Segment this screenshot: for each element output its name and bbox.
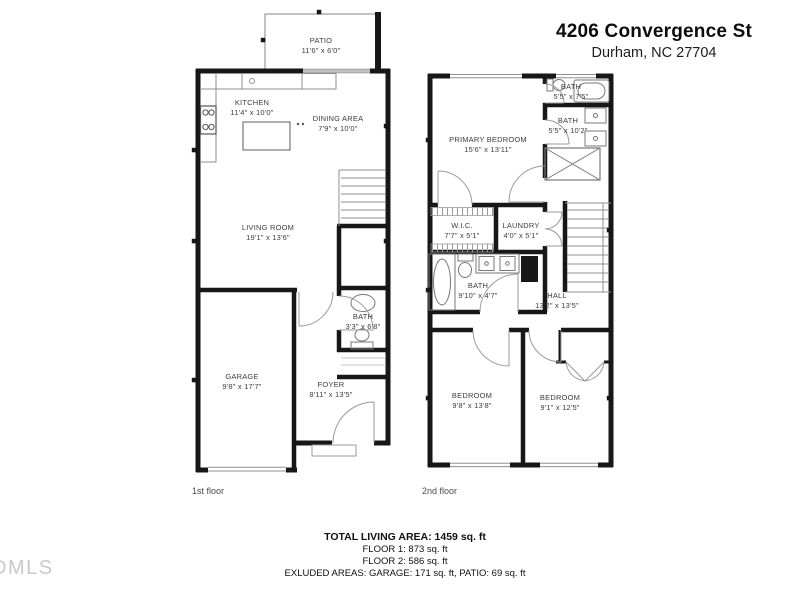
stairs-floor1 — [339, 170, 386, 226]
room-dims: 7'9" x 10'0" — [313, 124, 364, 134]
foyer-closet-shelves — [341, 358, 386, 365]
room-name: PATIO — [302, 36, 341, 46]
room-dims: 13'2" x 13'5" — [535, 301, 579, 311]
room-dims: 5'5" x 10'2" — [548, 126, 587, 136]
room-dims: 9'1" x 12'5" — [540, 403, 580, 413]
toilet-icon-main-bath — [458, 254, 473, 278]
address-subtitle: Durham, NC 27704 — [519, 45, 789, 61]
room-label-living: LIVING ROOM 19'1" x 13'6" — [242, 223, 294, 242]
room-label-patio: PATIO 11'6" x 6'0" — [302, 36, 341, 55]
room-name: BEDROOM — [452, 391, 492, 401]
sink-icons-upper-bath — [585, 108, 606, 146]
room-label-dining: DINING AREA 7'9" x 10'0" — [313, 114, 364, 133]
address-title: 4206 Convergence St — [519, 21, 789, 43]
room-name: BATH — [554, 82, 589, 92]
total-living-area: TOTAL LIVING AREA: 1459 sq. ft — [195, 531, 615, 544]
room-dims: 8'11" x 13'5" — [309, 390, 352, 400]
room-label-bedroom-right: BEDROOM 9'1" x 12'5" — [540, 393, 580, 412]
floor2-caption: 2nd floor — [422, 486, 457, 496]
room-name: LAUNDRY — [502, 221, 539, 231]
address-header: 4206 Convergence St Durham, NC 27704 — [519, 21, 789, 61]
room-dims: 15'6" x 13'11" — [449, 145, 527, 155]
kitchen-island — [243, 122, 304, 150]
room-label-hall: HALL 13'2" x 13'5" — [535, 291, 579, 310]
room-name: LIVING ROOM — [242, 223, 294, 233]
room-dims: 19'1" x 13'6" — [242, 233, 294, 243]
room-label-garage: GARAGE 9'8" x 17'7" — [222, 372, 261, 391]
floor1-plan — [196, 12, 390, 472]
room-dims: 7'7" x 5'1" — [445, 231, 480, 241]
bath1-sink-icon — [351, 295, 375, 312]
crossed-area — [545, 148, 600, 180]
bath1-toilet-icon — [351, 329, 373, 349]
room-dims: 9'10" x 4'7" — [458, 291, 497, 301]
room-label-wic: W.I.C. 7'7" x 5'1" — [445, 221, 480, 240]
stove-icon — [201, 106, 217, 134]
room-name: BEDROOM — [540, 393, 580, 403]
room-label-kitchen: KITCHEN 11'4" x 10'0" — [230, 98, 273, 117]
room-dims: 3'3" x 6'8" — [346, 322, 381, 332]
room-name: BATH — [346, 312, 381, 322]
floor1-area: FLOOR 1: 873 sq. ft — [195, 544, 615, 556]
floor1-caption: 1st floor — [192, 486, 224, 496]
room-label-bath-floor1: BATH 3'3" x 6'8" — [346, 312, 381, 331]
chase-block — [521, 256, 538, 282]
front-stoop — [312, 445, 356, 456]
room-dims: 9'8" x 13'8" — [452, 401, 492, 411]
room-name: FOYER — [309, 380, 352, 390]
floor1-interior-walls — [196, 226, 390, 470]
room-name: GARAGE — [222, 372, 261, 382]
floorplan-drawing — [0, 0, 800, 600]
room-label-bath-top: BATH 5'5" x 7'5" — [554, 82, 589, 101]
floor2-area: FLOOR 2: 586 sq. ft — [195, 556, 615, 568]
room-label-bath-upper: BATH 5'5" x 10'2" — [548, 116, 587, 135]
room-name: PRIMARY BEDROOM — [449, 135, 527, 145]
room-dims: 11'6" x 6'0" — [302, 46, 341, 56]
room-name: W.I.C. — [445, 221, 480, 231]
room-label-primary-bedroom: PRIMARY BEDROOM 15'6" x 13'11" — [449, 135, 527, 154]
tub-icon-main-bath — [429, 254, 455, 310]
double-sink-icon-main-bath — [476, 254, 519, 273]
dmls-watermark: DMLS — [0, 557, 54, 580]
room-dims: 11'4" x 10'0" — [230, 108, 273, 118]
room-name: HALL — [535, 291, 579, 301]
wall-tick-markers — [192, 10, 612, 401]
room-name: KITCHEN — [230, 98, 273, 108]
excluded-areas: EXLUDED AREAS: GARAGE: 171 sq. ft, PATIO… — [195, 568, 615, 580]
room-label-bath-main: BATH 9'10" x 4'7" — [458, 281, 497, 300]
room-label-bedroom-left: BEDROOM 9'8" x 13'8" — [452, 391, 492, 410]
area-summary: TOTAL LIVING AREA: 1459 sq. ft FLOOR 1: … — [195, 531, 615, 580]
room-dims: 4'0" x 5'1" — [502, 231, 539, 241]
stairs-floor2 — [565, 203, 611, 292]
room-dims: 5'5" x 7'5" — [554, 92, 589, 102]
floorplan-page: 4206 Convergence St Durham, NC 27704 PAT… — [0, 0, 800, 600]
room-name: BATH — [548, 116, 587, 126]
room-name: BATH — [458, 281, 497, 291]
room-name: DINING AREA — [313, 114, 364, 124]
room-label-foyer: FOYER 8'11" x 13'5" — [309, 380, 352, 399]
room-dims: 9'8" x 17'7" — [222, 382, 261, 392]
room-label-laundry: LAUNDRY 4'0" x 5'1" — [502, 221, 539, 240]
